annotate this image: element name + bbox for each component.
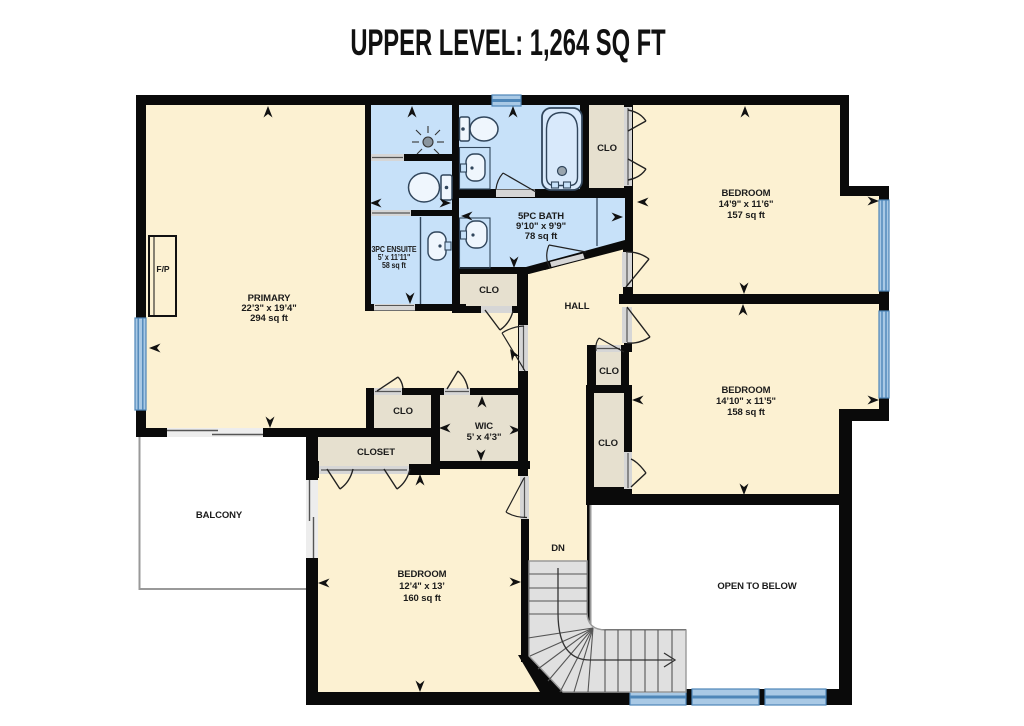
svg-text:157 sq ft: 157 sq ft xyxy=(727,210,766,221)
svg-text:5’ x 4’3": 5’ x 4’3" xyxy=(467,432,502,443)
svg-text:OPEN TO BELOW: OPEN TO BELOW xyxy=(717,581,796,592)
svg-text:CLO: CLO xyxy=(393,406,413,417)
svg-text:14’10" x 11’5": 14’10" x 11’5" xyxy=(716,396,776,407)
svg-text:CLO: CLO xyxy=(597,143,617,154)
svg-text:294 sq ft: 294 sq ft xyxy=(250,313,289,324)
svg-text:14’9" x 11’6": 14’9" x 11’6" xyxy=(719,199,774,210)
svg-text:UPPER LEVEL: 1,264 SQ FT: UPPER LEVEL: 1,264 SQ FT xyxy=(350,22,665,64)
svg-text:BEDROOM: BEDROOM xyxy=(722,385,771,396)
svg-text:WIC: WIC xyxy=(475,421,493,432)
svg-text:CLO: CLO xyxy=(598,438,618,449)
svg-text:F/P: F/P xyxy=(156,264,170,274)
svg-text:CLO: CLO xyxy=(479,285,499,296)
svg-text:12’4" x 13’: 12’4" x 13’ xyxy=(399,581,445,592)
svg-text:160 sq ft: 160 sq ft xyxy=(403,593,442,604)
svg-text:BEDROOM: BEDROOM xyxy=(398,569,447,580)
svg-text:CLOSET: CLOSET xyxy=(357,447,395,458)
svg-text:BALCONY: BALCONY xyxy=(196,510,243,521)
svg-text:HALL: HALL xyxy=(565,301,590,312)
svg-text:CLO: CLO xyxy=(599,366,619,377)
svg-text:58 sq ft: 58 sq ft xyxy=(382,261,406,271)
svg-text:BEDROOM: BEDROOM xyxy=(722,188,771,199)
svg-text:158 sq ft: 158 sq ft xyxy=(727,407,766,418)
svg-text:DN: DN xyxy=(551,543,565,554)
svg-text:78 sq ft: 78 sq ft xyxy=(525,231,558,242)
